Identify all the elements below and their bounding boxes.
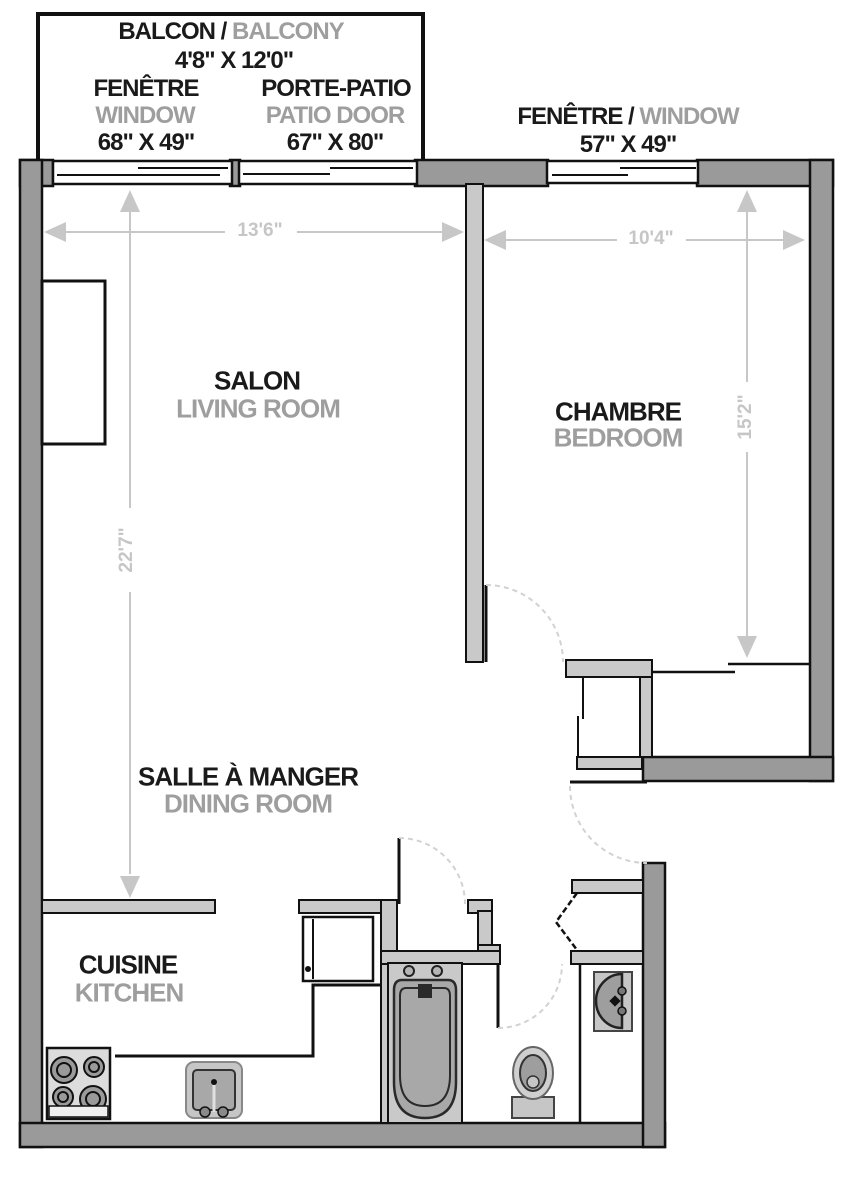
sink-drain [211, 1079, 217, 1085]
living-room-label-en: LIVING ROOM [176, 394, 340, 425]
kitchen-wall-left [42, 900, 215, 913]
bedroom-window-size: 57" X 49" [580, 131, 677, 159]
living-length-dimension: 22'7" [116, 527, 138, 572]
sink-faucet-1 [200, 1107, 210, 1117]
entry-side-wall [643, 863, 665, 1147]
stove [47, 1048, 110, 1119]
storage-closet-east [478, 911, 492, 949]
living-width-dimension: 13'6" [237, 220, 282, 242]
bathroom-door-arc [498, 964, 562, 1028]
bedroom-east-wall [810, 160, 833, 781]
kitchen-label-fr: CUISINE [79, 950, 177, 981]
entry-door-arc [570, 786, 647, 863]
patio-door-label-fr: PORTE-PATIO [261, 75, 410, 103]
stove-front-panel [49, 1106, 108, 1117]
balcony-label-fr: BALCON [118, 18, 215, 45]
bedroom-width-dimension: 10'4" [628, 228, 673, 250]
bathtub [388, 963, 462, 1123]
living-window-size: 68" X 49" [98, 129, 195, 157]
balcony-label: BALCON / BALCONY [118, 18, 343, 46]
living-window-label-en: WINDOW [95, 102, 194, 130]
kitchen-label-en: KITCHEN [75, 978, 184, 1009]
bathroom-north-east [571, 951, 643, 964]
linen-closet-stub [572, 880, 643, 893]
balcony-label-en: BALCONY [232, 18, 344, 45]
living-room-label-fr: SALON [214, 366, 300, 397]
tub-body [394, 980, 456, 1118]
kitchen-cabinet [303, 917, 373, 981]
patio-door-opening [239, 161, 417, 184]
kitchen-wall-right [299, 900, 389, 913]
bedroom-closet-south [577, 757, 642, 769]
patio-door-size: 67" X 80" [287, 129, 384, 157]
vanity-sink [594, 972, 632, 1031]
left-wall [20, 160, 42, 1147]
living-window-label-fr: FENÊTRE [93, 75, 198, 103]
balcony-size: 4'8" X 12'0" [175, 47, 293, 75]
bedroom-south-wall [643, 757, 833, 781]
floor-plan-drawing [0, 0, 850, 1190]
accordion-closet-door [556, 893, 577, 950]
kitchen-sink [186, 1062, 242, 1118]
patio-door-label-en: PATIO DOOR [266, 102, 404, 130]
living-window [53, 161, 232, 184]
bedroom-label-en: BEDROOM [554, 423, 683, 454]
top-wall-center [415, 160, 548, 186]
cabinet-handle [305, 966, 311, 972]
bedroom-window-label-sep: / [622, 103, 639, 130]
balcony-label-sep: / [215, 18, 232, 45]
sink-faucet-2 [218, 1107, 228, 1117]
bedroom-window-label-fr: FENÊTRE [517, 103, 622, 130]
living-room-radiator [42, 281, 105, 444]
vanity-faucet-1 [618, 987, 626, 995]
living-bedroom-partition [466, 184, 483, 662]
tub-knob-right [432, 966, 442, 976]
floor-plan: BALCON / BALCONY 4'8" X 12'0" FENÊTRE WI… [0, 0, 850, 1190]
bottom-wall [20, 1123, 665, 1147]
vanity-faucet-2 [618, 1007, 626, 1015]
storage-door-arc [399, 838, 465, 904]
bedroom-window-label: FENÊTRE / WINDOW [517, 103, 738, 131]
tub-spout [418, 984, 432, 998]
bedroom-length-dimension: 15'2" [735, 394, 757, 439]
bedroom-closet-north [566, 660, 652, 677]
toilet [512, 1047, 554, 1118]
bedroom-closet-east [640, 677, 652, 757]
tub-knob-left [404, 966, 414, 976]
toilet-tank [512, 1097, 554, 1118]
bedroom-door-arc [486, 585, 563, 662]
bedroom-window [547, 161, 698, 183]
bedroom-window-label-en: WINDOW [639, 103, 738, 130]
toilet-drain [527, 1076, 539, 1088]
dining-room-label-en: DINING ROOM [164, 789, 332, 820]
window-openings [53, 161, 698, 184]
